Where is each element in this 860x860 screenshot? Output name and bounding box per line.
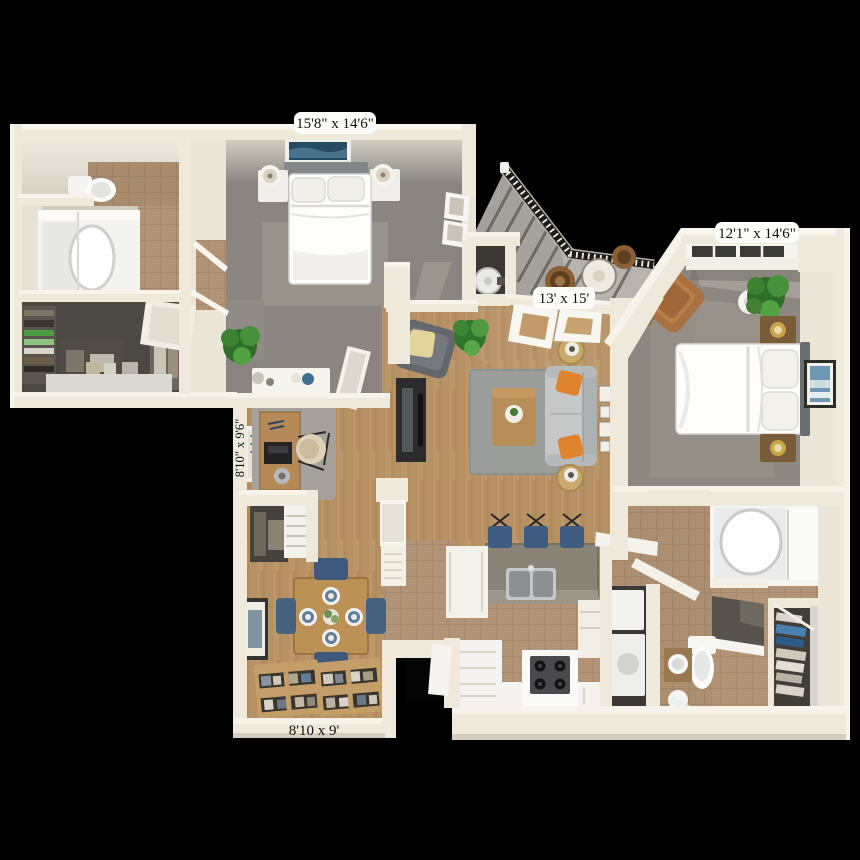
svg-text:8'10" x 9'6": 8'10" x 9'6" (233, 419, 247, 477)
svg-text:15'8" x 14'6": 15'8" x 14'6" (296, 116, 374, 132)
svg-text:8'10 x 9': 8'10 x 9' (289, 723, 340, 739)
svg-text:13' x 15': 13' x 15' (539, 291, 590, 307)
svg-text:12'1" x 14'6": 12'1" x 14'6" (718, 226, 796, 242)
